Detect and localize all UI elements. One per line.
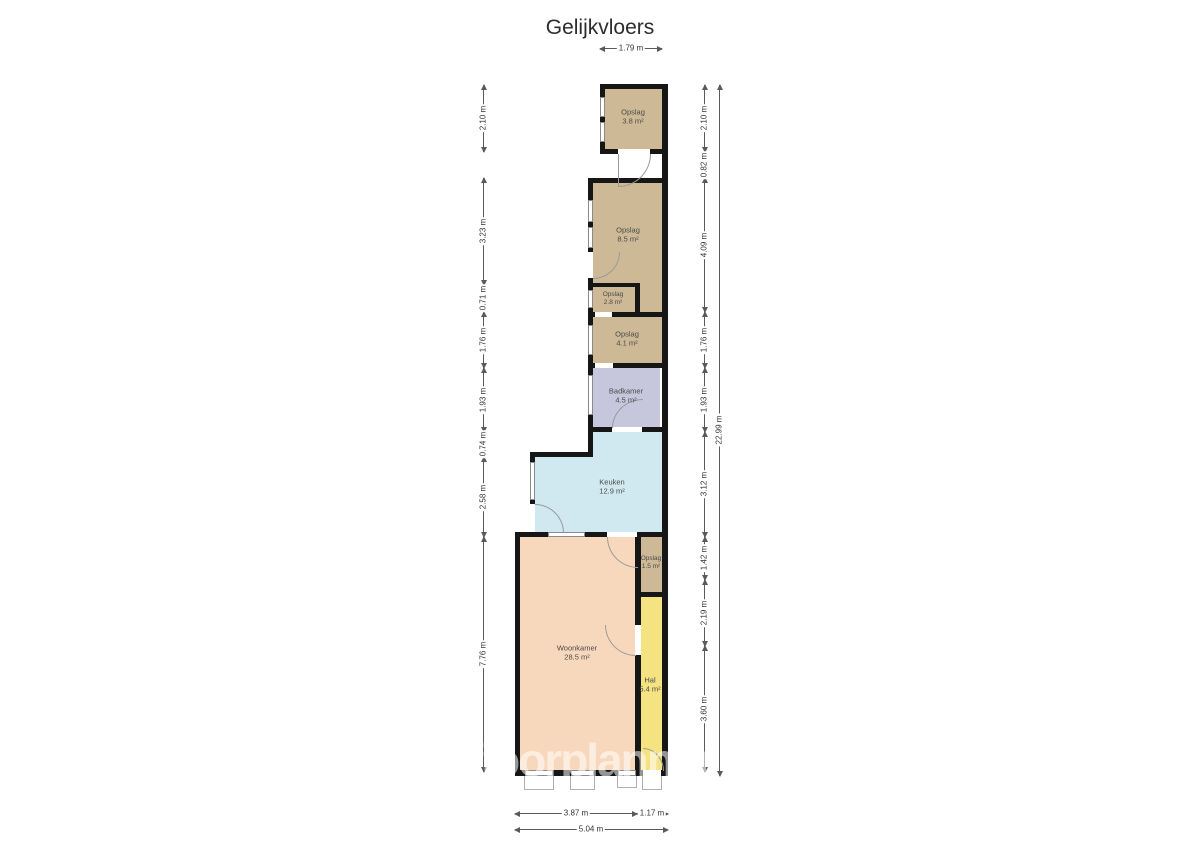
wall-segment — [588, 427, 612, 432]
room-area: 28.5 m² — [557, 653, 597, 662]
room-area: 3.8 m² — [621, 117, 645, 126]
dim-label-left: 1.93 m — [479, 386, 488, 414]
wall-segment — [530, 452, 593, 457]
room-name: Opslag — [603, 291, 624, 299]
wall-segment — [637, 532, 668, 537]
room-area: 1.5 m² — [641, 563, 662, 571]
wall-segment — [588, 363, 595, 368]
room-name: Keuken — [599, 478, 624, 487]
wall-segment — [642, 427, 668, 432]
room-label-hal: Hal 5.4 m² — [639, 676, 660, 695]
window — [588, 200, 593, 222]
dim-label-right: 0.82 m — [700, 151, 709, 179]
dim-label-right: 3.60 m — [700, 695, 709, 723]
dim-label-left: 2.10 m — [479, 104, 488, 132]
wall-segment — [635, 592, 668, 597]
room-name: Opslag — [616, 226, 640, 235]
room-name: Woonkamer — [557, 644, 597, 653]
room-area: 2.8 m² — [603, 299, 624, 307]
room-label-opslag-small: Opslag 2.8 m² — [603, 291, 624, 307]
page-title: Gelijkvloers — [0, 16, 1200, 40]
wall-segment — [635, 283, 640, 312]
dim-label-bottom: 1.17 m — [638, 808, 666, 819]
dim-label-right: 1.42 m — [700, 544, 709, 572]
room-area: 8.5 m² — [616, 235, 640, 244]
room-keuken-upper — [593, 432, 662, 457]
room-label-opslag-tiny: Opslag 1.5 m² — [641, 555, 662, 571]
dim-label-bottom: 3.87 m — [562, 808, 590, 819]
room-area: 5.4 m² — [639, 685, 660, 694]
dim-label-left: 3.23 m — [479, 217, 488, 245]
dim-label-left: 7.76 m — [479, 640, 488, 668]
room-label-opslag-large: Opslag 8.5 m² — [616, 226, 640, 245]
wall-segment — [594, 770, 618, 776]
room-name: Badkamer — [609, 387, 643, 396]
dim-label-right: 1.93 m — [700, 386, 709, 414]
room-label-opslag-mid: Opslag 4.1 m² — [615, 330, 639, 349]
room-label-opslag-top: Opslag 3.8 m² — [621, 108, 645, 127]
wall-segment — [613, 363, 668, 368]
window — [588, 375, 593, 415]
window — [588, 227, 593, 248]
room-name: Opslag — [641, 555, 662, 563]
room-name: Hal — [639, 676, 660, 685]
entrance-porch — [642, 776, 662, 790]
room-name: Opslag — [615, 330, 639, 339]
window — [618, 770, 636, 776]
window — [588, 290, 593, 308]
room-label-keuken: Keuken 12.9 m² — [599, 478, 624, 497]
room-name: Opslag — [621, 108, 645, 117]
wall-segment — [515, 770, 525, 776]
wall-segment — [600, 149, 618, 154]
wall-segment — [612, 312, 668, 317]
wall-segment — [588, 312, 595, 317]
dim-label-left: 2.58 m — [479, 483, 488, 511]
wall-outer-left — [515, 532, 520, 776]
dim-label-left: 1.76 m — [479, 326, 488, 354]
floorplan-page: Gelijkvloers — [0, 0, 1200, 849]
room-area: 12.9 m² — [599, 487, 624, 496]
window — [525, 770, 553, 776]
dim-label-right: 4.09 m — [700, 231, 709, 259]
room-label-woonkamer: Woonkamer 28.5 m² — [557, 644, 597, 663]
window — [600, 122, 605, 142]
dim-label-right: 2.19 m — [700, 599, 709, 627]
wall-segment — [553, 770, 571, 776]
bay-window — [570, 776, 595, 790]
bay-window — [617, 776, 637, 788]
dim-label-right-total: 22.99 m — [715, 414, 724, 447]
dim-label-bottom-total: 5.04 m — [577, 824, 605, 835]
wall-segment — [636, 770, 643, 776]
wall-segment — [593, 283, 640, 287]
wall-segment — [600, 84, 605, 154]
dim-label-right: 2.10 m — [700, 104, 709, 132]
wall-segment — [585, 532, 607, 537]
dim-label-left: 0.71 m — [479, 284, 488, 312]
room-area: 4.5 m² — [609, 396, 643, 405]
wall-segment — [635, 655, 641, 776]
window — [600, 97, 605, 117]
bay-window — [524, 776, 554, 790]
room-area: 4.1 m² — [615, 339, 639, 348]
dim-label-right: 3.12 m — [700, 470, 709, 498]
dim-label-left: 0.74 m — [479, 430, 488, 458]
dim-label-right: 1.76 m — [700, 326, 709, 354]
wall-segment — [600, 84, 667, 89]
window — [571, 770, 594, 776]
room-label-badkamer: Badkamer 4.5 m² — [609, 387, 643, 406]
dim-label-top: 1.79 m — [617, 43, 645, 54]
window — [530, 462, 535, 500]
window — [588, 325, 593, 355]
